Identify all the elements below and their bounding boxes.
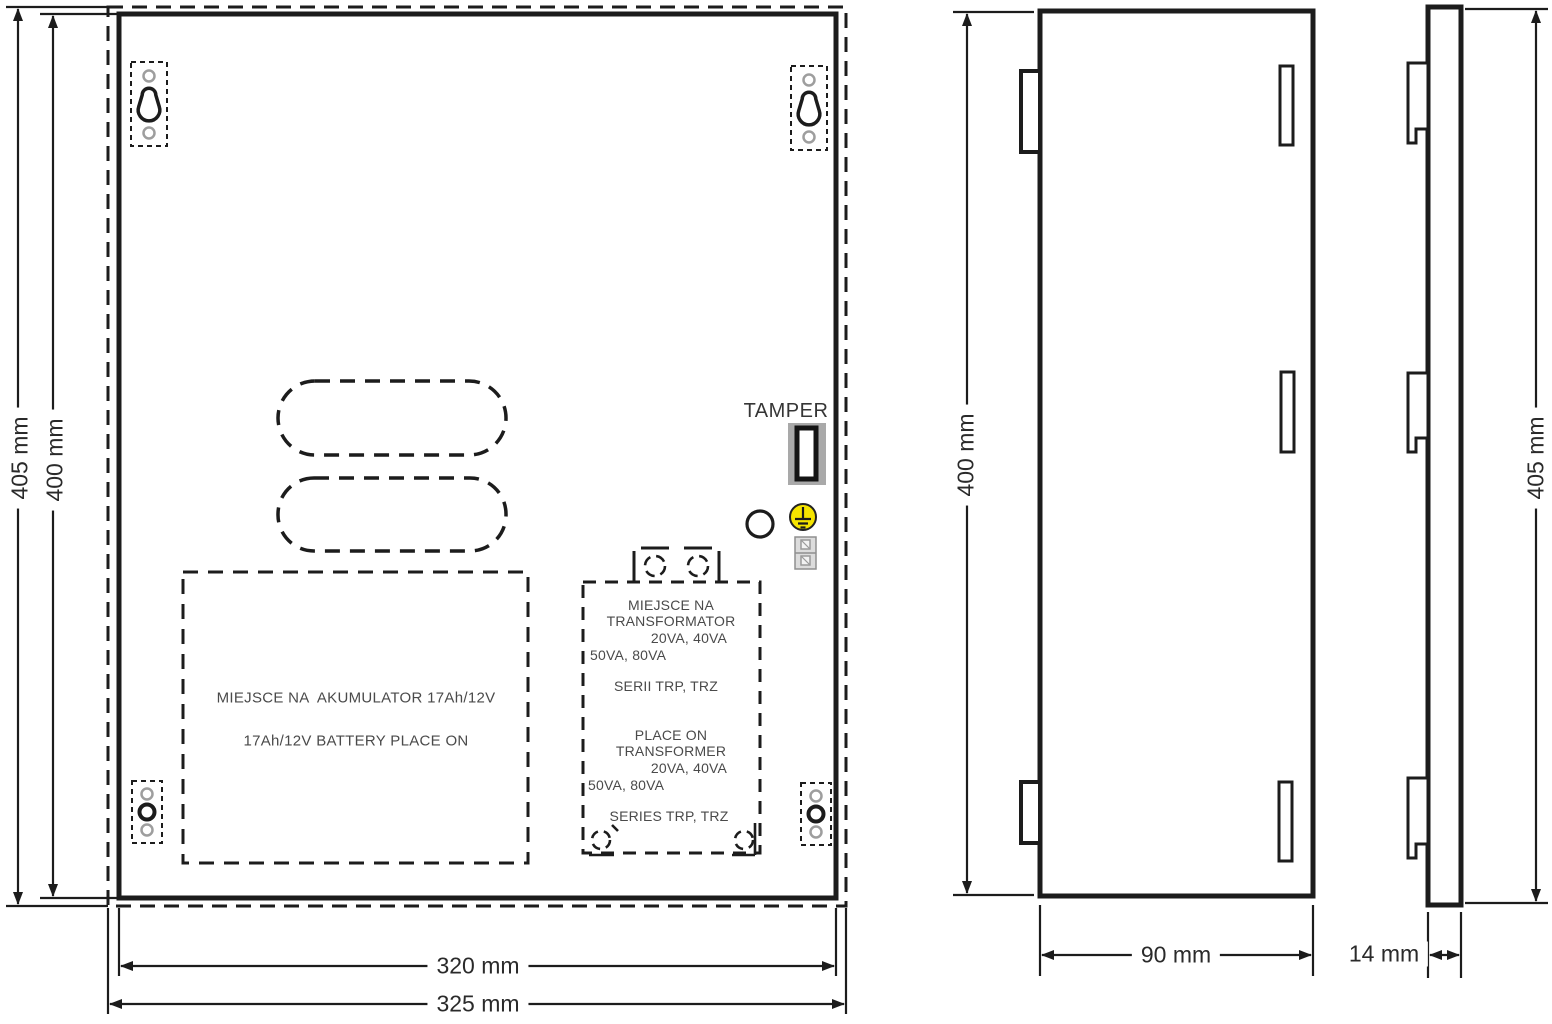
transformer-text-en-2: TRANSFORMER (616, 744, 726, 758)
battery-area-text-pl: MIEJSCE NA AKUMULATOR 17Ah/12V (217, 691, 496, 706)
transformer-text-en-1: PLACE ON (635, 728, 707, 742)
tamper-switch (788, 423, 826, 485)
profile-enclosure-body (1428, 7, 1461, 905)
transformer-text-pl-3: 20VA, 40VA (651, 631, 727, 645)
ground-symbol-icon (790, 504, 816, 530)
dim-label-profile-height: 405 mm (1524, 407, 1549, 508)
dim-label-side-height: 400 mm (954, 404, 979, 505)
mount-hole-circle (747, 511, 773, 537)
transformer-text-pl-4: 50VA, 80VA (590, 648, 666, 662)
battery-area-text-en: 17Ah/12V BATTERY PLACE ON (243, 734, 468, 749)
dim-label-front-width-inner: 320 mm (427, 954, 528, 979)
transformer-text-en-4: 50VA, 80VA (588, 778, 664, 792)
wall-hook-top (1408, 63, 1428, 143)
keyhole-slot (798, 92, 820, 125)
hinge-top (1021, 71, 1040, 152)
vent-slot-middle (1281, 372, 1294, 452)
side-enclosure-body (1040, 11, 1313, 896)
side-view (953, 11, 1313, 976)
wall-hook-bottom (1408, 778, 1428, 858)
drawing-linework (0, 0, 1552, 1024)
dim-label-front-height-inner: 400 mm (43, 409, 68, 510)
vent-slot-bottom (1279, 782, 1292, 861)
transformer-text-en-series: SERIES TRP, TRZ (610, 809, 729, 823)
wall-hook-middle (1408, 373, 1428, 452)
transformer-text-en-3: 20VA, 40VA (651, 761, 727, 775)
transformer-text-pl-2: TRANSFORMATOR (607, 614, 736, 628)
keyhole-slot (138, 88, 160, 121)
hinge-bottom (1021, 782, 1040, 843)
dim-label-profile-depth: 14 mm (1340, 942, 1428, 967)
front-enclosure-body (119, 14, 836, 898)
transformer-text-pl-series: SERII TRP, TRZ (614, 679, 718, 693)
tamper-label: TAMPER (744, 401, 829, 421)
transformer-text-pl-1: MIEJSCE NA (628, 598, 714, 612)
enclosure-dimension-drawing: 405 mm 400 mm 320 mm 325 mm TAMPER MIEJS… (0, 0, 1552, 1024)
vent-slot-top (1280, 66, 1293, 145)
terminal-block (795, 537, 816, 569)
front-view (6, 7, 846, 1014)
dim-label-front-height-outer: 405 mm (8, 407, 33, 508)
dim-label-front-width-outer: 325 mm (427, 992, 528, 1017)
dim-label-side-depth: 90 mm (1132, 943, 1220, 968)
